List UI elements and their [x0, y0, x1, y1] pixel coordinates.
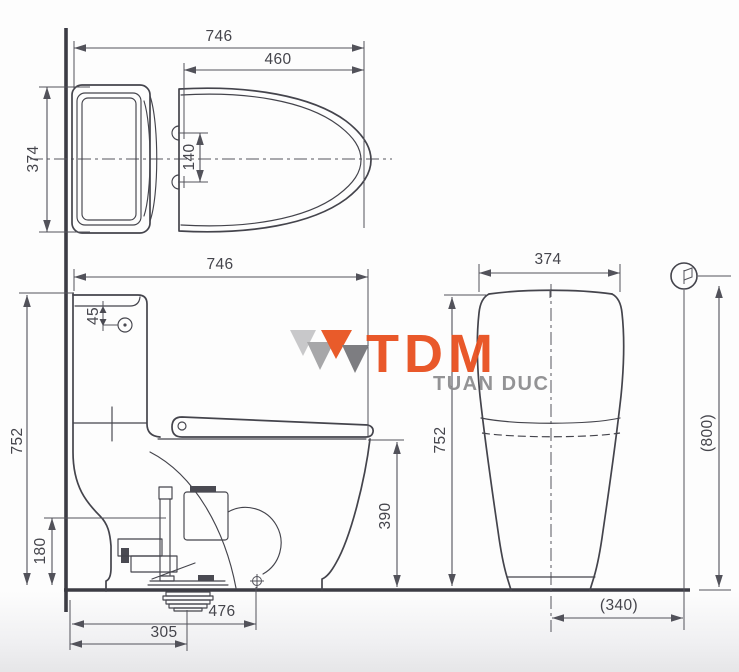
tdm-logo-mark-icon [290, 330, 369, 373]
dim-front-bolt-distance: 476 [208, 603, 235, 621]
pedestal-outline [73, 293, 111, 591]
hinge-hole [172, 126, 179, 140]
dim-front-button-offset: 45 [85, 307, 103, 325]
drain-flange [163, 592, 213, 611]
tdm-logo: TDM TUAN DUC [286, 322, 558, 400]
dim-front-rim-height: 390 [377, 502, 395, 529]
technical-drawing: 746 460 374 140 746 45 752 180 390 476 3… [0, 0, 739, 672]
rear-view-elevation [477, 263, 697, 632]
seat-hinge [178, 422, 186, 430]
bowl-front-outline [322, 439, 370, 590]
dim-side-supply-offset: (340) [600, 597, 638, 615]
dim-front-height: 752 [9, 427, 27, 454]
dim-side-width: 374 [534, 251, 561, 269]
dim-side-height: 752 [432, 426, 450, 453]
dim-top-lid-length: 460 [264, 51, 291, 69]
seat-lid-plan [179, 88, 371, 232]
watermark: TDM TUAN DUC [286, 322, 558, 400]
dim-side-supply-height: (800) [699, 414, 717, 452]
floor-bolt-icon [250, 574, 264, 588]
flush-mechanism [118, 486, 281, 585]
seat-profile [172, 417, 373, 437]
hinge-hole [172, 175, 179, 189]
dim-top-hinge-spacing: 140 [181, 143, 199, 170]
water-supply-icon [671, 263, 697, 289]
top-view-plan [30, 85, 392, 233]
dim-top-total-length: 746 [205, 28, 232, 46]
dim-front-total-length: 746 [206, 256, 233, 274]
top-view-dimensions [39, 41, 364, 232]
dim-front-trap-distance: 305 [150, 624, 177, 642]
dim-front-inlet-height: 180 [32, 537, 50, 564]
watermark-company: TUAN DUC [433, 373, 549, 395]
dim-top-width: 374 [25, 145, 43, 172]
